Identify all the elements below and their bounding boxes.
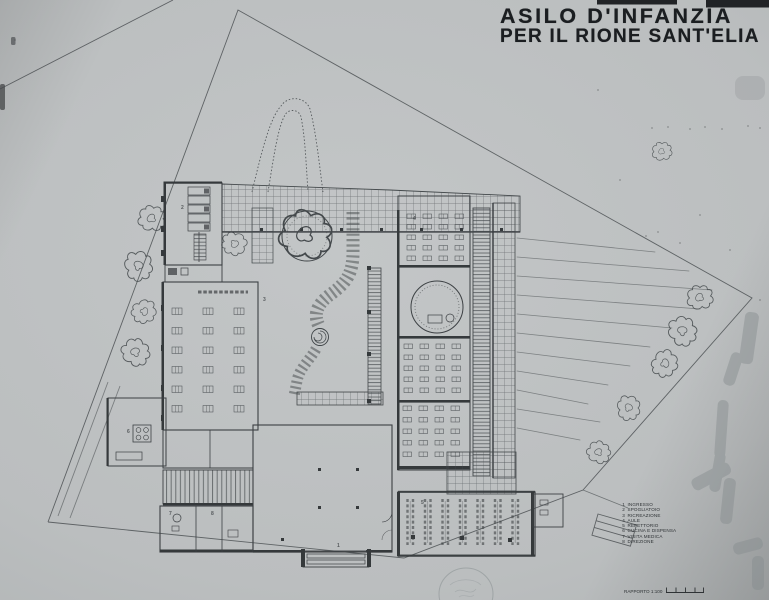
svg-text:6: 6 <box>127 429 130 435</box>
access-loop-road <box>252 99 323 192</box>
stamp-mark <box>439 568 493 600</box>
toilet-stalls <box>188 187 210 231</box>
legend-item: 8 DIREZIONE <box>620 539 676 544</box>
title-line-1: ASILO D'INFANZIA <box>500 5 760 27</box>
courtyard <box>252 206 383 405</box>
svg-text:2: 2 <box>181 205 184 211</box>
scale-note: RAPPORTO 1:100 <box>624 585 706 594</box>
spogliatoio-wing <box>161 182 222 283</box>
scale-bar <box>666 585 706 594</box>
wc-basin <box>173 514 181 522</box>
stepping-stone-path <box>294 212 353 396</box>
title-line-2: PER IL RIONE SANT'ELIA <box>500 27 760 47</box>
title-block: ASILO D'INFANZIA PER IL RIONE SANT'ELIA <box>500 5 760 47</box>
legend-label: DIREZIONE <box>628 539 654 544</box>
svg-text:8: 8 <box>211 511 214 517</box>
tape-blotches <box>690 311 764 590</box>
kitchen <box>107 398 167 466</box>
stove <box>133 425 151 442</box>
dust-specks <box>14 39 761 301</box>
plan-photo: 12345678 ASILO D'INFANZIA PER IL RIONE S… <box>0 0 769 600</box>
service-rooms <box>160 430 253 552</box>
svg-text:3: 3 <box>263 297 266 303</box>
garden-strips <box>517 238 712 440</box>
entrance-hall <box>253 425 392 567</box>
svg-text:7: 7 <box>169 511 172 517</box>
svg-text:5: 5 <box>421 500 424 506</box>
circular-classroom <box>411 281 463 333</box>
scale-label: RAPPORTO 1:100 <box>624 589 662 594</box>
svg-text:4: 4 <box>413 216 416 222</box>
spiral-kiosk <box>312 329 329 346</box>
legend-num: 8 <box>620 539 625 544</box>
legend: 1 INGRESSO 2 SPOGLIATOIO 3 RICREAZIONE 4… <box>620 502 676 544</box>
courtyard-east-wall <box>368 268 381 404</box>
service-stairs <box>163 470 253 504</box>
svg-text:1: 1 <box>337 543 340 549</box>
